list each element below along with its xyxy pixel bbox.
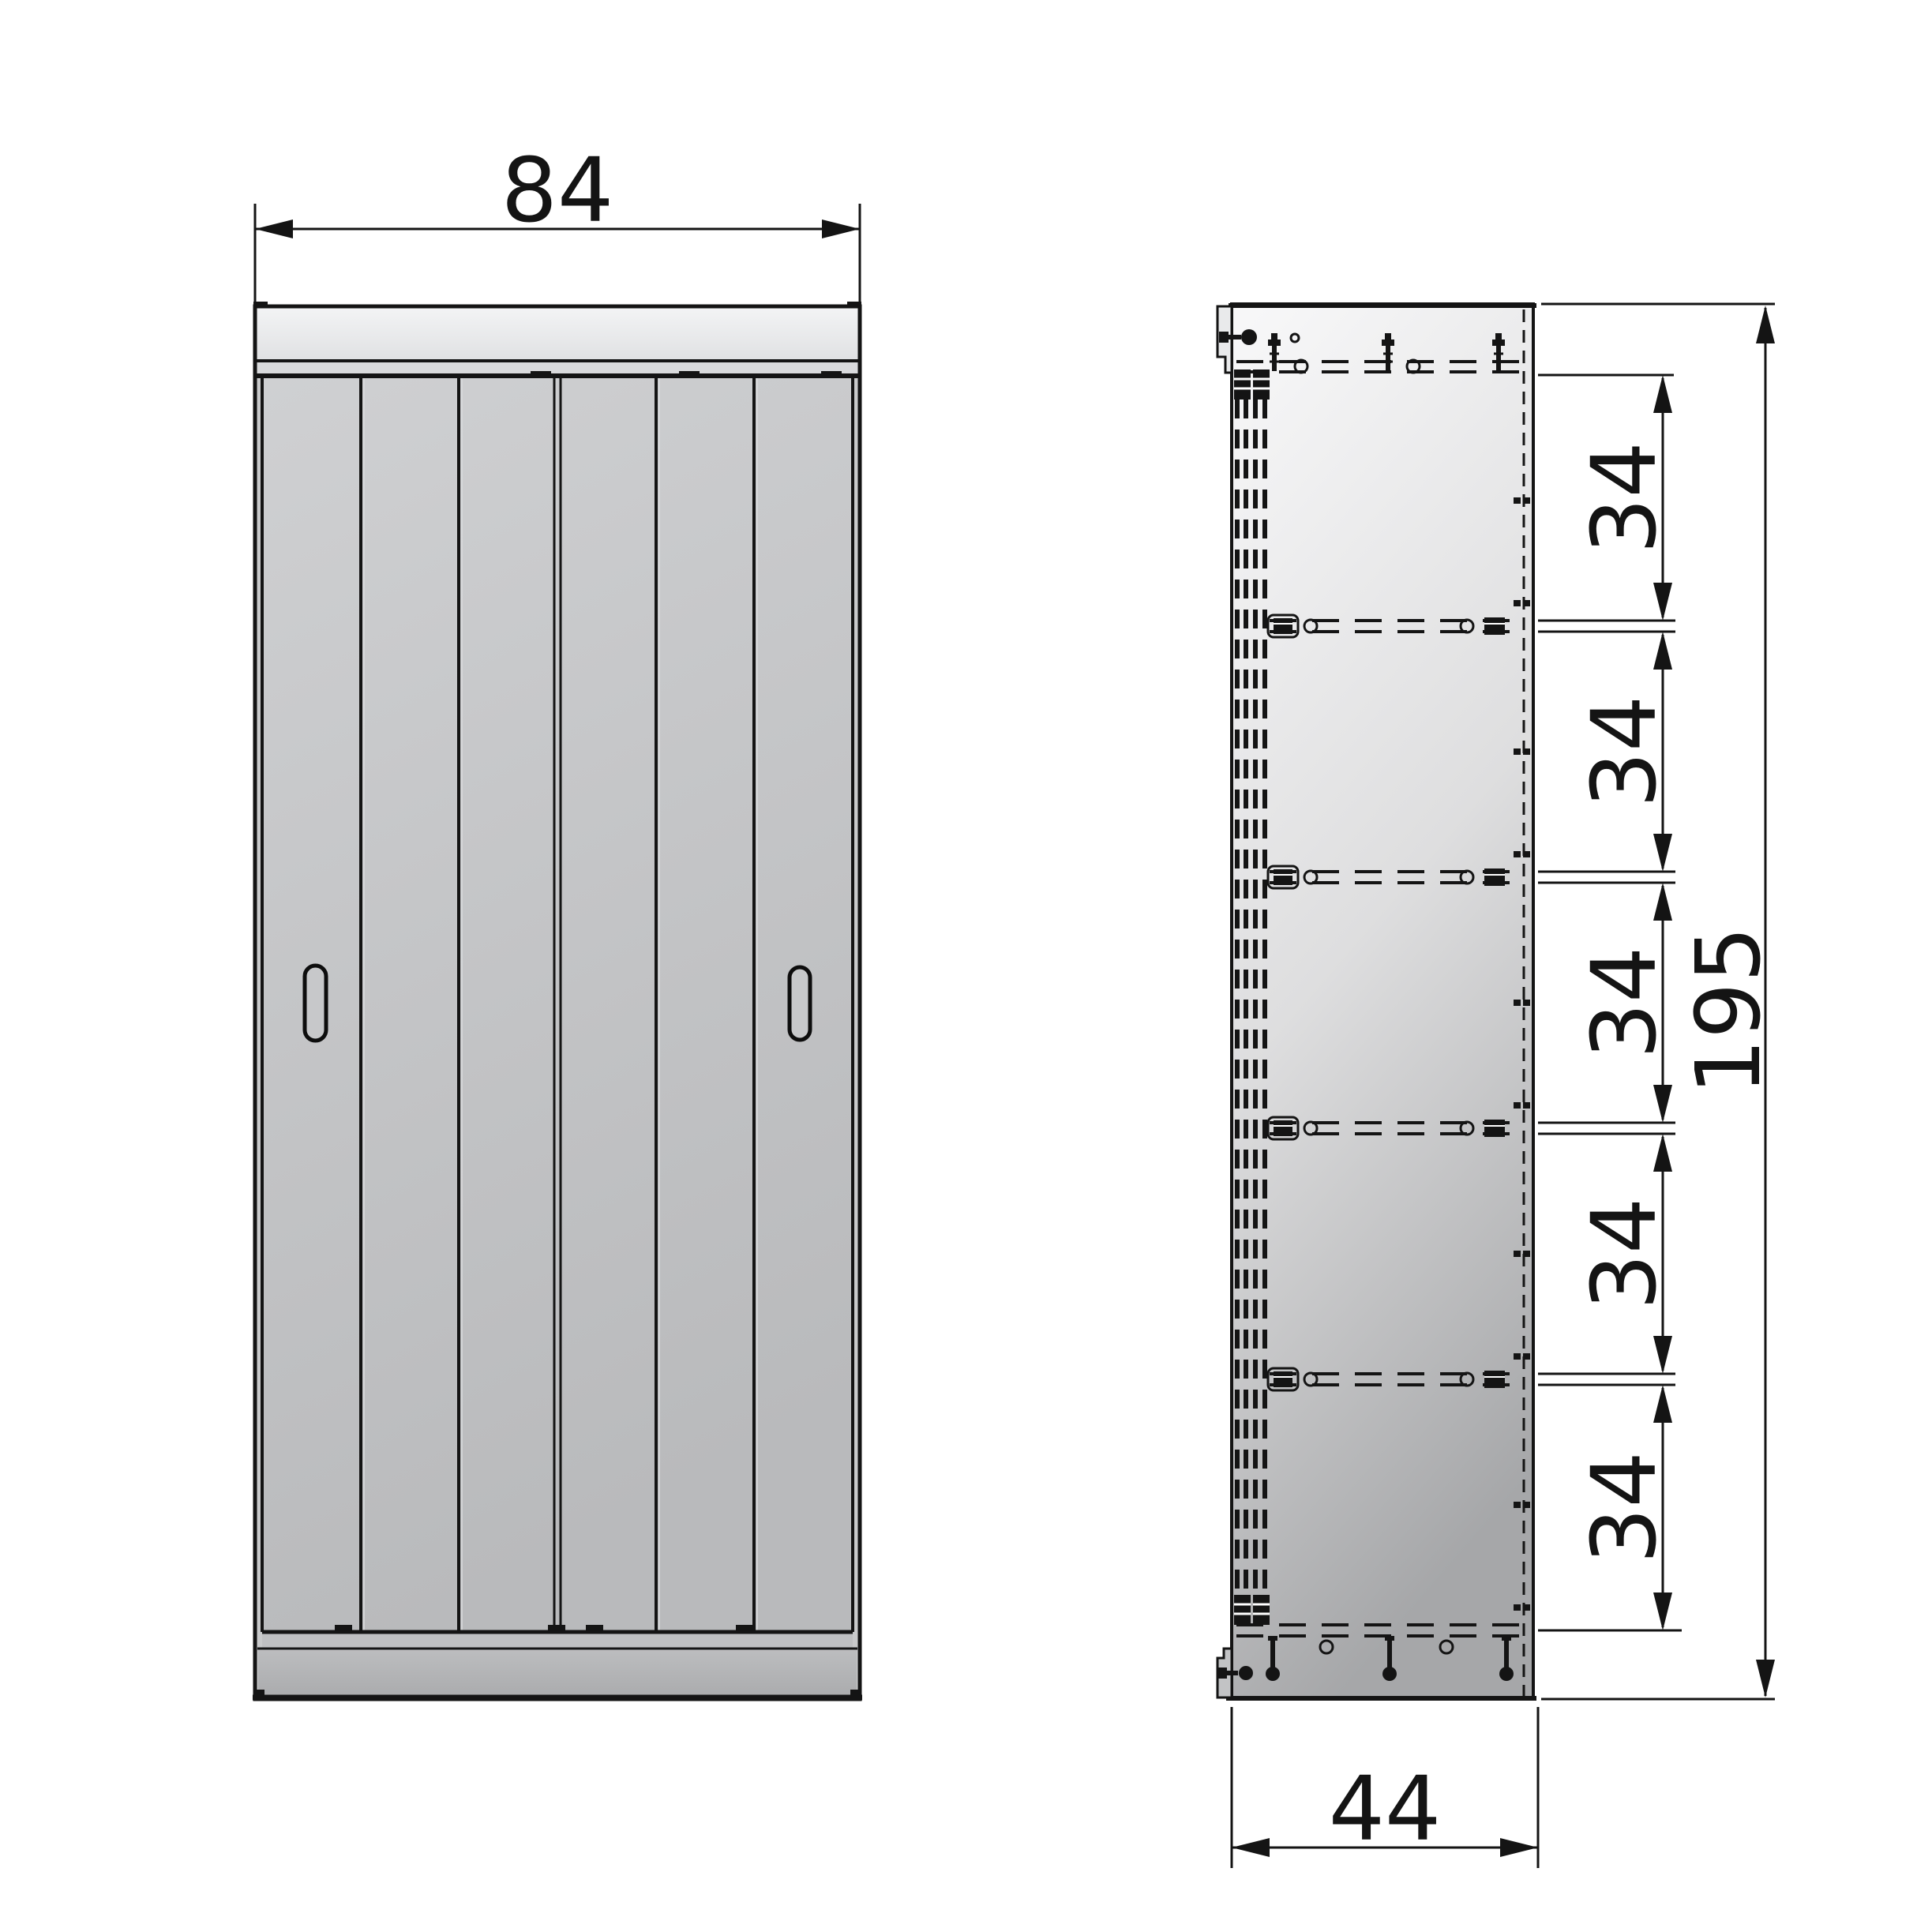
cam-tick — [1523, 1251, 1530, 1257]
corner-nub — [847, 302, 861, 308]
front-top-cap — [255, 306, 860, 361]
bottom-guide-tick — [335, 1625, 352, 1632]
dimension-arrowhead — [1653, 1336, 1672, 1374]
cam-tick — [1514, 748, 1521, 755]
dimension-arrowhead — [1653, 1134, 1672, 1172]
cam-tick — [1523, 851, 1530, 857]
top-guide-tick — [679, 371, 700, 377]
dimension-arrowhead — [1653, 1592, 1672, 1630]
shelf-spacing-label: 34 — [1574, 1451, 1676, 1564]
dimension-arrowhead — [1232, 1838, 1270, 1857]
door-handle-left — [305, 966, 326, 1041]
side-panel — [1232, 304, 1533, 1699]
bolt-head — [1217, 1668, 1227, 1679]
width-dimension-label: 84 — [501, 140, 614, 242]
shelf-connector — [1274, 869, 1292, 885]
cam-tick — [1523, 1353, 1530, 1360]
cam-tick — [1514, 600, 1521, 606]
hanger-shaft — [1270, 1638, 1275, 1668]
dimension-arrowhead — [1500, 1838, 1538, 1857]
cam-tick — [1523, 1102, 1530, 1109]
hanger-shaft — [1387, 1638, 1392, 1668]
shelf-connector — [1484, 1371, 1505, 1388]
screw-head — [1268, 340, 1281, 346]
door-handle-right — [790, 967, 810, 1040]
hanger-ball — [1382, 1667, 1397, 1681]
cam-tick — [1523, 748, 1530, 755]
screw-head — [1382, 340, 1394, 346]
side-depth-dimension: 44 — [1232, 1707, 1538, 1868]
dimension-arrowhead — [1653, 583, 1672, 621]
shelf-spacing-dimensions: 3434343434 — [1538, 375, 1682, 1630]
cam-tick — [1514, 1102, 1521, 1109]
cam-tick — [1514, 851, 1521, 857]
cam-tick — [1514, 1353, 1521, 1360]
front-width-dimension: 84 — [255, 140, 860, 302]
dimension-arrowhead — [1653, 1385, 1672, 1423]
hanger-ball — [1499, 1667, 1514, 1681]
hanger-shaft — [1504, 1638, 1509, 1668]
shelf-spacing-label: 34 — [1574, 1198, 1676, 1311]
bolt-shaft — [1227, 1671, 1238, 1675]
track-fitting-top — [1253, 370, 1270, 400]
shelf-connector — [1484, 617, 1505, 635]
shelf-spacing-label: 34 — [1574, 947, 1676, 1060]
top-guide-tick — [531, 371, 551, 377]
dimension-arrowhead — [1756, 1660, 1775, 1698]
side-view — [1217, 304, 1536, 1699]
screw-tip — [1495, 333, 1502, 340]
dimension-arrowhead — [255, 219, 293, 238]
dimension-arrowhead — [1756, 306, 1775, 343]
dimension-arrowhead — [1653, 375, 1672, 413]
front-doors-panel — [262, 377, 853, 1632]
cam-tick — [1514, 1502, 1521, 1508]
depth-dimension-label: 44 — [1329, 1758, 1442, 1861]
bolt-ball — [1241, 329, 1257, 345]
dimension-arrowhead — [1653, 632, 1672, 670]
bottom-guide-tick — [586, 1625, 603, 1632]
screw-shaft — [1386, 346, 1390, 371]
corner-nub — [257, 1690, 264, 1698]
cam-tick — [1523, 1502, 1530, 1508]
wardrobe-technical-drawing: 84 195 3434343434 44 — [0, 0, 1932, 1932]
screw-shaft — [1496, 346, 1501, 371]
dimension-arrowhead — [1653, 883, 1672, 921]
dimension-arrowhead — [822, 219, 860, 238]
track-fitting-top — [1234, 370, 1251, 400]
bolt-shaft — [1229, 335, 1241, 340]
shelf-connector — [1274, 618, 1292, 634]
track-fitting-bottom — [1253, 1595, 1270, 1625]
cam-tick — [1523, 1000, 1530, 1006]
screw-tip — [1385, 333, 1391, 340]
bottom-guide-tick — [548, 1625, 565, 1632]
shelf-connector — [1484, 868, 1505, 886]
dimension-arrowhead — [1653, 1085, 1672, 1123]
hanger-ball — [1266, 1667, 1280, 1681]
cam-tick — [1514, 497, 1521, 504]
cam-tick — [1523, 497, 1530, 504]
shelf-spacing-label: 34 — [1574, 696, 1676, 808]
screw-shaft — [1272, 346, 1277, 371]
cam-tick — [1514, 1604, 1521, 1611]
cam-tick — [1514, 1251, 1521, 1257]
technical-drawing-page: 84 195 3434343434 44 — [0, 0, 1932, 1932]
top-guide-tick — [821, 371, 842, 377]
dimension-arrowhead — [1653, 834, 1672, 872]
front-view — [253, 302, 862, 1699]
cam-tick — [1514, 1000, 1521, 1006]
bolt-head — [1219, 332, 1229, 343]
front-plinth — [258, 1650, 857, 1698]
shelf-connector — [1274, 1371, 1292, 1387]
corner-nub — [850, 1690, 858, 1698]
track-fitting-bottom — [1234, 1595, 1251, 1625]
shelf-connector — [1274, 1120, 1292, 1136]
shelf-connector — [1484, 1120, 1505, 1137]
cam-tick — [1523, 600, 1530, 606]
corner-nub — [253, 302, 268, 308]
screw-head — [1492, 340, 1505, 346]
shelf-spacing-label: 34 — [1574, 441, 1676, 554]
front-bottom-rail — [262, 1634, 853, 1648]
cam-tick — [1523, 1604, 1530, 1611]
bolt-ball — [1239, 1666, 1253, 1680]
screw-tip — [1271, 333, 1277, 340]
bottom-guide-tick — [736, 1625, 753, 1632]
